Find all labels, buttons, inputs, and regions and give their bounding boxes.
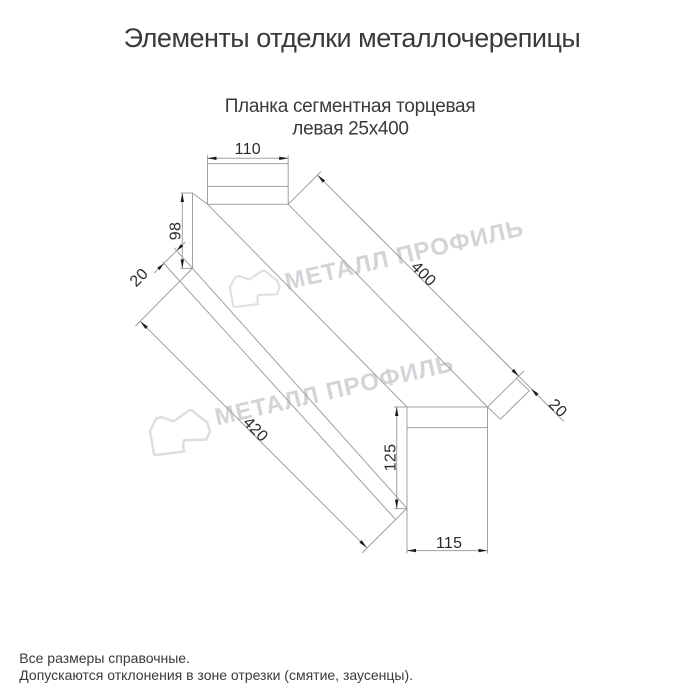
svg-text:Планка сегментная торцевая: Планка сегментная торцевая — [225, 96, 476, 117]
svg-text:Все размеры справочные.: Все размеры справочные. — [19, 650, 190, 666]
svg-text:левая 25х400: левая 25х400 — [292, 119, 408, 140]
svg-text:Элементы отделки металлочерепи: Элементы отделки металлочерепицы — [124, 23, 581, 53]
svg-text:110: 110 — [235, 141, 261, 158]
svg-text:125: 125 — [383, 444, 400, 472]
svg-text:Допускаются отклонения в зоне: Допускаются отклонения в зоне отрезки (с… — [19, 667, 413, 683]
svg-text:98: 98 — [168, 222, 185, 240]
svg-text:115: 115 — [436, 535, 462, 552]
